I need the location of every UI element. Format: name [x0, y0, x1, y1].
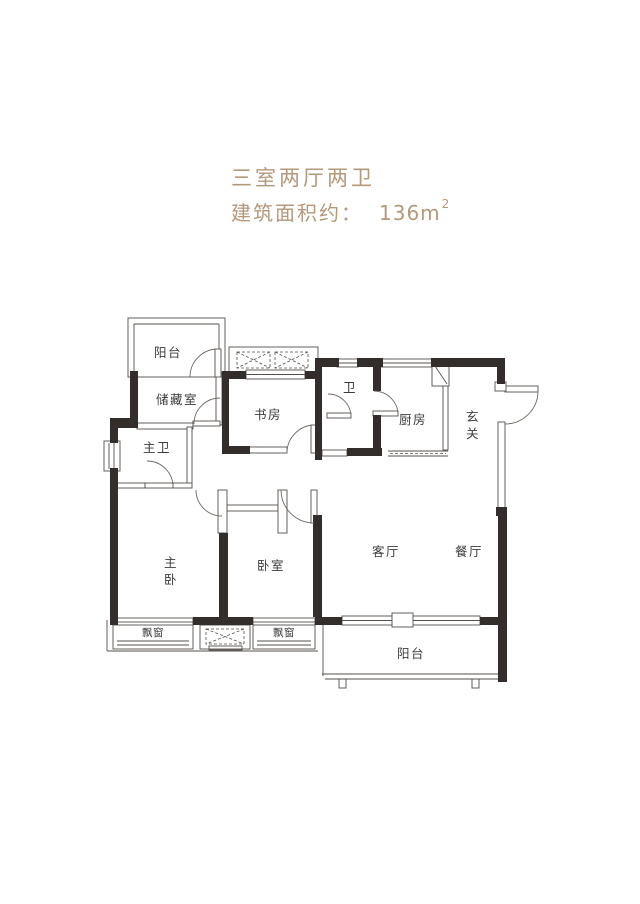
masterbath-window [104, 441, 120, 471]
balcony-door-leaf [215, 349, 221, 377]
room-label-living: 客厅 [372, 544, 400, 559]
room-label-entry-char2: 关 [466, 426, 480, 441]
corridor-stub-left [218, 490, 227, 533]
room-label-kitchen: 厨房 [399, 412, 427, 427]
living-south-window-mullion [392, 613, 413, 627]
entry-door-leaf [505, 386, 538, 392]
study-bottom-window [249, 447, 287, 453]
room-label-dining: 餐厅 [455, 544, 483, 559]
bath-door-leaf [327, 413, 351, 418]
room-label-masterbedroom-char2: 卧 [164, 572, 178, 587]
floorplan-page: 三室两厅两卫 建筑面积约： 136m 2 [0, 0, 640, 904]
masterbath-right-wall [187, 427, 192, 487]
corridor-stub-right [278, 490, 287, 533]
room-label-masterbedroom-char1: 主 [164, 555, 178, 570]
room-label-baywindow-left: 飘窗 [142, 626, 164, 639]
room-label-masterbath: 主卫 [143, 440, 171, 455]
bay-window-left-sill [113, 618, 193, 625]
room-label-bath: 卫 [343, 380, 357, 395]
masterbath-bottom-wall-right [173, 483, 192, 488]
masterbath-top-wall [137, 423, 193, 429]
bath-bottom-thin [322, 450, 347, 456]
room-label-balcony-bottom: 阳台 [397, 646, 425, 661]
room-label-baywindow-right: 飘窗 [273, 626, 295, 639]
bay-window-right-sill [253, 618, 315, 625]
room-label-balcony-top: 阳台 [154, 345, 182, 360]
corridor-south-wall [227, 505, 278, 511]
balcony-door-arc [190, 349, 218, 377]
room-label-storage: 储藏室 [156, 392, 198, 407]
room-label-entry-char1: 玄 [466, 409, 480, 424]
floor-plan-svg: 阳台 储藏室 书房 卫 厨房 玄 关 主卫 主 卧 卧室 客厅 餐厅 飘窗 飘窗… [0, 0, 640, 904]
masterbath-door-sill [145, 483, 173, 488]
east-thin-wall [498, 422, 505, 508]
room-label-bedroom: 卧室 [257, 558, 285, 573]
room-label-study: 书房 [254, 407, 282, 422]
kitchen-entry-divider [443, 383, 448, 450]
entry-door-arc [505, 391, 538, 424]
storage-door-sill [193, 421, 220, 426]
